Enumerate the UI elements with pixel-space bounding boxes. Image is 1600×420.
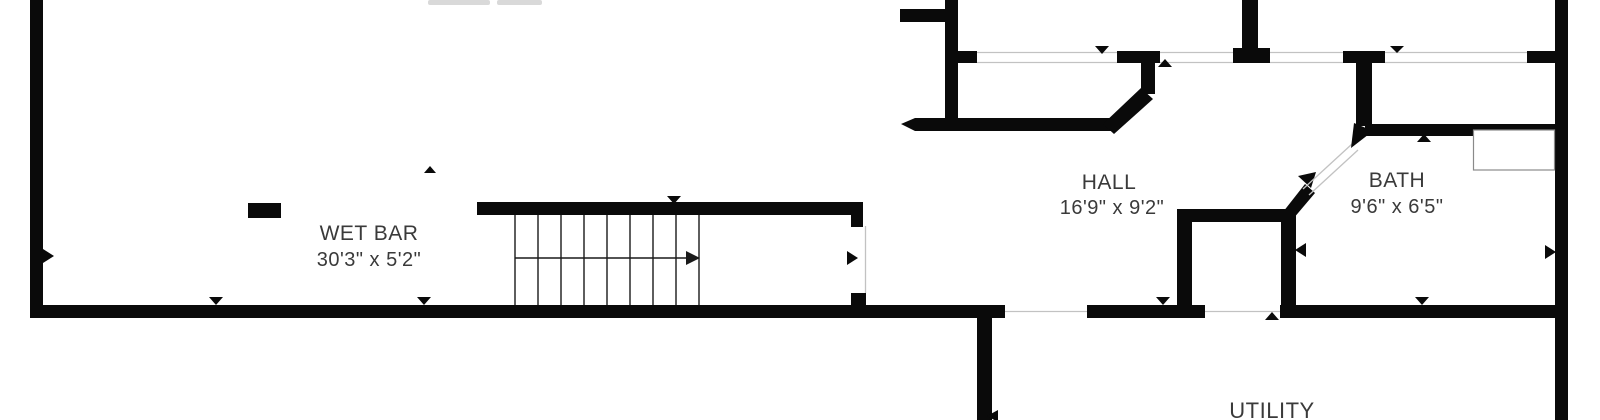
stair-top-wall — [477, 202, 863, 215]
right-exterior-wall — [1555, 0, 1568, 420]
hall-diagonal-top-cap — [1117, 51, 1160, 63]
bath-dims: 9'6" x 6'5" — [1351, 196, 1444, 218]
utility-label: UTILITY — [1229, 398, 1314, 420]
top-jamb-vertical-wall — [1242, 0, 1258, 51]
door-marker-right-icon — [43, 249, 54, 263]
bottom-wall-left-segment — [30, 305, 1005, 318]
wet-bar-dims: 30'3" x 5'2" — [317, 249, 422, 271]
door-marker-down-icon — [209, 297, 223, 305]
fixtures — [1474, 130, 1555, 170]
hall-diagonal-wall — [1103, 88, 1153, 134]
stair-bottom-stub — [851, 293, 866, 306]
door-marker-down-icon — [1156, 297, 1170, 305]
bottom-wall-right-segment — [1280, 305, 1568, 318]
stair-direction-arrow-icon — [686, 251, 700, 265]
door-marker-down-icon — [417, 297, 431, 305]
door-marker-right-icon — [847, 251, 858, 265]
cutoff-text-fragments — [428, 0, 542, 5]
diagonal-doorway-line — [1303, 144, 1352, 189]
hall-diagonal-vertical-stub — [1141, 58, 1155, 94]
bottom-wall-middle-segment — [1087, 305, 1205, 318]
opening-lines — [866, 53, 1528, 312]
door-markers — [43, 46, 1556, 420]
door-marker-up-icon — [1265, 312, 1279, 320]
door-marker-right-icon — [1545, 245, 1556, 259]
door-marker-left-icon — [1295, 243, 1306, 257]
wet-bar-label: WET BAR — [320, 222, 419, 245]
door-marker-up-icon — [424, 166, 436, 173]
wet-bar-counter — [248, 203, 281, 218]
floor-plan-drawing: WET BAR 30'3" x 5'2" HALL 16'9" x 9'2" B… — [0, 0, 1600, 420]
hall-upper-wall — [915, 118, 1115, 131]
cutoff-text-fragment — [428, 0, 490, 5]
right-wall-stub — [1527, 51, 1555, 63]
door-marker-down-icon — [1415, 297, 1429, 305]
bath-left-vertical-wall — [1356, 51, 1372, 126]
floor-plan: WET BAR 30'3" x 5'2" HALL 16'9" x 9'2" B… — [0, 0, 1600, 420]
stair-top-wall-end-stub — [851, 213, 863, 227]
hall-label: HALL — [1082, 171, 1137, 194]
bath-label: BATH — [1369, 169, 1425, 192]
cutoff-text-fragment — [497, 0, 542, 5]
top-partition-vertical-wall — [945, 0, 958, 122]
closet-top-wall — [1177, 209, 1296, 222]
diagonal-doorway-line — [1309, 150, 1358, 195]
staircase — [515, 215, 700, 305]
hall-dims: 16'9" x 9'2" — [1060, 197, 1165, 219]
left-exterior-wall — [30, 0, 43, 318]
closet-diagonal-wall — [1283, 184, 1315, 219]
closet-right-wall — [1281, 222, 1296, 305]
door-marker-left-icon — [901, 118, 915, 131]
utility-left-wall — [977, 305, 992, 420]
bath-vanity — [1474, 130, 1555, 170]
top-jamb-cap — [1233, 48, 1270, 63]
closet-left-wall — [1177, 209, 1192, 305]
top-partition-left-stub — [900, 9, 945, 22]
top-partition-right-stub — [958, 51, 977, 63]
